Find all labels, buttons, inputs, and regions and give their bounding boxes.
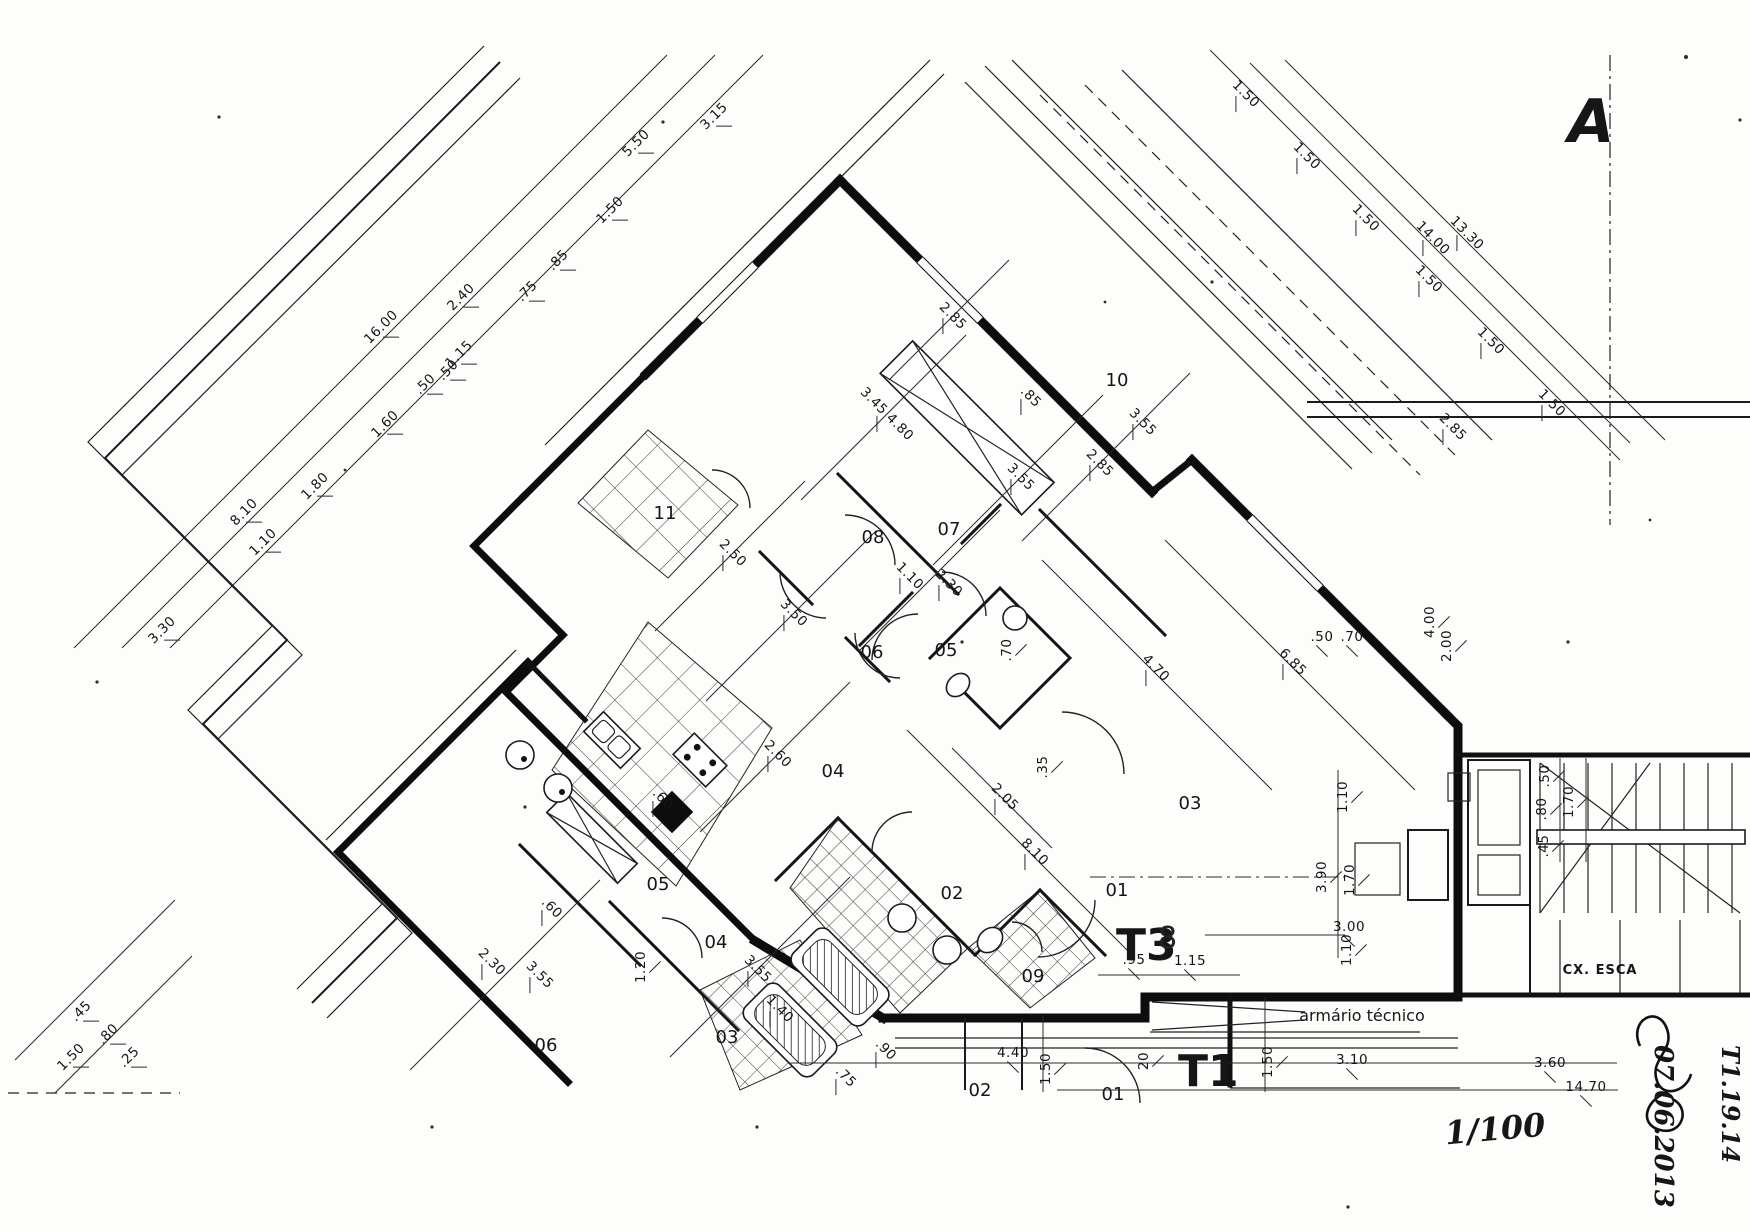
- washer-icon: [506, 741, 534, 769]
- dim-label: 8.10: [1018, 835, 1052, 869]
- room-label: 02: [941, 883, 964, 904]
- scale-handwritten: 1/100: [1443, 1106, 1547, 1153]
- room-label: 11: [654, 503, 677, 524]
- dim-label: 1.20: [633, 951, 649, 983]
- room-label: 04: [705, 932, 728, 953]
- dim-label: 3.55: [1126, 405, 1160, 439]
- room-label: 01: [1106, 880, 1129, 901]
- room-label: 02: [969, 1080, 992, 1101]
- dim-label: .70: [1341, 629, 1364, 645]
- dim-label: 1.10: [1335, 781, 1351, 813]
- washer-icon: [544, 774, 572, 802]
- dim-label: 1.10: [1339, 934, 1355, 966]
- dim-label: 3.60: [1534, 1055, 1566, 1071]
- zigzag-walls: [8, 46, 520, 1093]
- dimension-tick: [1152, 1055, 1163, 1066]
- room-label: 06: [861, 642, 884, 663]
- dim-label: 1.50: [1229, 77, 1263, 111]
- room-label: 06: [535, 1035, 558, 1056]
- outer-walls: [474, 180, 1458, 1018]
- stair-core: [1355, 755, 1750, 995]
- dim-label: 1.70: [1342, 864, 1358, 896]
- label-armario-tecnico: armário técnico: [1299, 1006, 1424, 1025]
- dimension-tick: [649, 961, 660, 972]
- dim-label: 4.40: [997, 1045, 1029, 1061]
- dim-label: 5.50: [619, 126, 653, 160]
- dim-label: 3.55: [523, 958, 557, 992]
- room-label: 05: [935, 640, 958, 661]
- room-label: 08: [862, 527, 885, 548]
- dim-label: 1.50: [1535, 386, 1569, 420]
- dim-label: 2.00: [1439, 630, 1455, 662]
- ref-handwritten: T1.19.14: [1716, 1045, 1745, 1163]
- room-label: 03: [716, 1027, 739, 1048]
- room-label: 10: [1106, 370, 1129, 391]
- sink-icon: [1003, 606, 1027, 630]
- dim-label: 1.80: [298, 469, 332, 503]
- dim-label: 1.70: [1561, 786, 1577, 818]
- dimension-tick: [1346, 645, 1357, 656]
- dimension-tick: [1544, 1071, 1555, 1082]
- dim-label: 6.85: [1276, 645, 1310, 679]
- dim-label: 3.30: [145, 613, 179, 647]
- room-label: 04: [822, 761, 845, 782]
- dimension-tick: [1316, 645, 1327, 656]
- room-label: 07: [938, 519, 961, 540]
- unit-label-t1: T1: [1178, 1046, 1239, 1097]
- dim-label: 3.15: [697, 99, 731, 133]
- dim-label: 2.05: [988, 780, 1022, 814]
- dim-label: .45: [1536, 835, 1552, 858]
- room-label: 03: [1179, 793, 1202, 814]
- dim-label: 14.70: [1565, 1079, 1606, 1095]
- dimension-tick: [1455, 640, 1466, 651]
- dim-label: 1.50: [1474, 324, 1508, 358]
- dim-label: 1.50: [1412, 262, 1446, 296]
- dim-label: 1.50: [54, 1040, 88, 1074]
- dim-label: 2.30: [932, 566, 966, 600]
- sink-icon: [933, 936, 961, 964]
- floor-plan-canvas: 3.301.108.101.801.6016.00.50.501.152.40.…: [0, 0, 1750, 1232]
- dim-label: 1.50: [1349, 201, 1383, 235]
- dimension-tick: [1577, 796, 1588, 807]
- dimension-tick: [1351, 791, 1362, 802]
- dim-label: 1.50: [1038, 1053, 1054, 1085]
- dimension-tick: [1276, 1056, 1287, 1067]
- dim-label: .80: [1534, 798, 1550, 821]
- dim-label: 1.10: [246, 525, 280, 559]
- room-label: 01: [1102, 1084, 1125, 1105]
- floor-plan-page: 3.301.108.101.801.6016.00.50.501.152.40.…: [0, 0, 1750, 1232]
- dim-label: .50: [1537, 765, 1553, 788]
- dim-label: 1.50: [1290, 139, 1324, 173]
- dimension-tick: [1580, 1095, 1591, 1106]
- unit-label-t3-overprint: 8: [1158, 921, 1177, 956]
- dim-label: 1.60: [368, 407, 402, 441]
- elevator-shaft: [1468, 760, 1530, 905]
- dim-label: 4.70: [1139, 651, 1173, 685]
- dimension-tick: [1054, 1063, 1065, 1074]
- dim-label: 3.10: [1336, 1052, 1368, 1068]
- dimension-tick: [1346, 1068, 1357, 1079]
- dim-label: .35: [1035, 756, 1051, 779]
- dim-label: 1.15: [1174, 953, 1206, 969]
- dim-label: 8.10: [227, 495, 261, 529]
- dimension-tick: [1438, 616, 1449, 627]
- dim-label: 20: [1136, 1052, 1152, 1070]
- dim-label: .70: [999, 639, 1015, 662]
- dimension-tick: [1015, 644, 1026, 655]
- room-label: 05: [647, 874, 670, 895]
- dim-label: 2.30: [475, 945, 509, 979]
- dim-label: 3.90: [1314, 861, 1330, 893]
- label-stairwell: CX. ESCA: [1563, 963, 1638, 978]
- dim-label: .50: [1311, 629, 1334, 645]
- section-marker-a: A: [1564, 87, 1614, 157]
- dimension-tick: [1051, 761, 1062, 772]
- stair-handrail: [1537, 830, 1745, 844]
- dimension-tick: [1358, 874, 1369, 885]
- sink-icon: [888, 904, 916, 932]
- dim-label: 1.50: [1260, 1046, 1276, 1078]
- dim-label: 3.00: [1333, 919, 1365, 935]
- dim-label: 2.85: [1436, 410, 1470, 444]
- scan-noise: [95, 55, 1741, 1209]
- dimension-tick: [1355, 944, 1366, 955]
- dim-label: 4.00: [1422, 606, 1438, 638]
- room-label: 09: [1022, 966, 1045, 987]
- dim-label: 1.50: [593, 193, 627, 227]
